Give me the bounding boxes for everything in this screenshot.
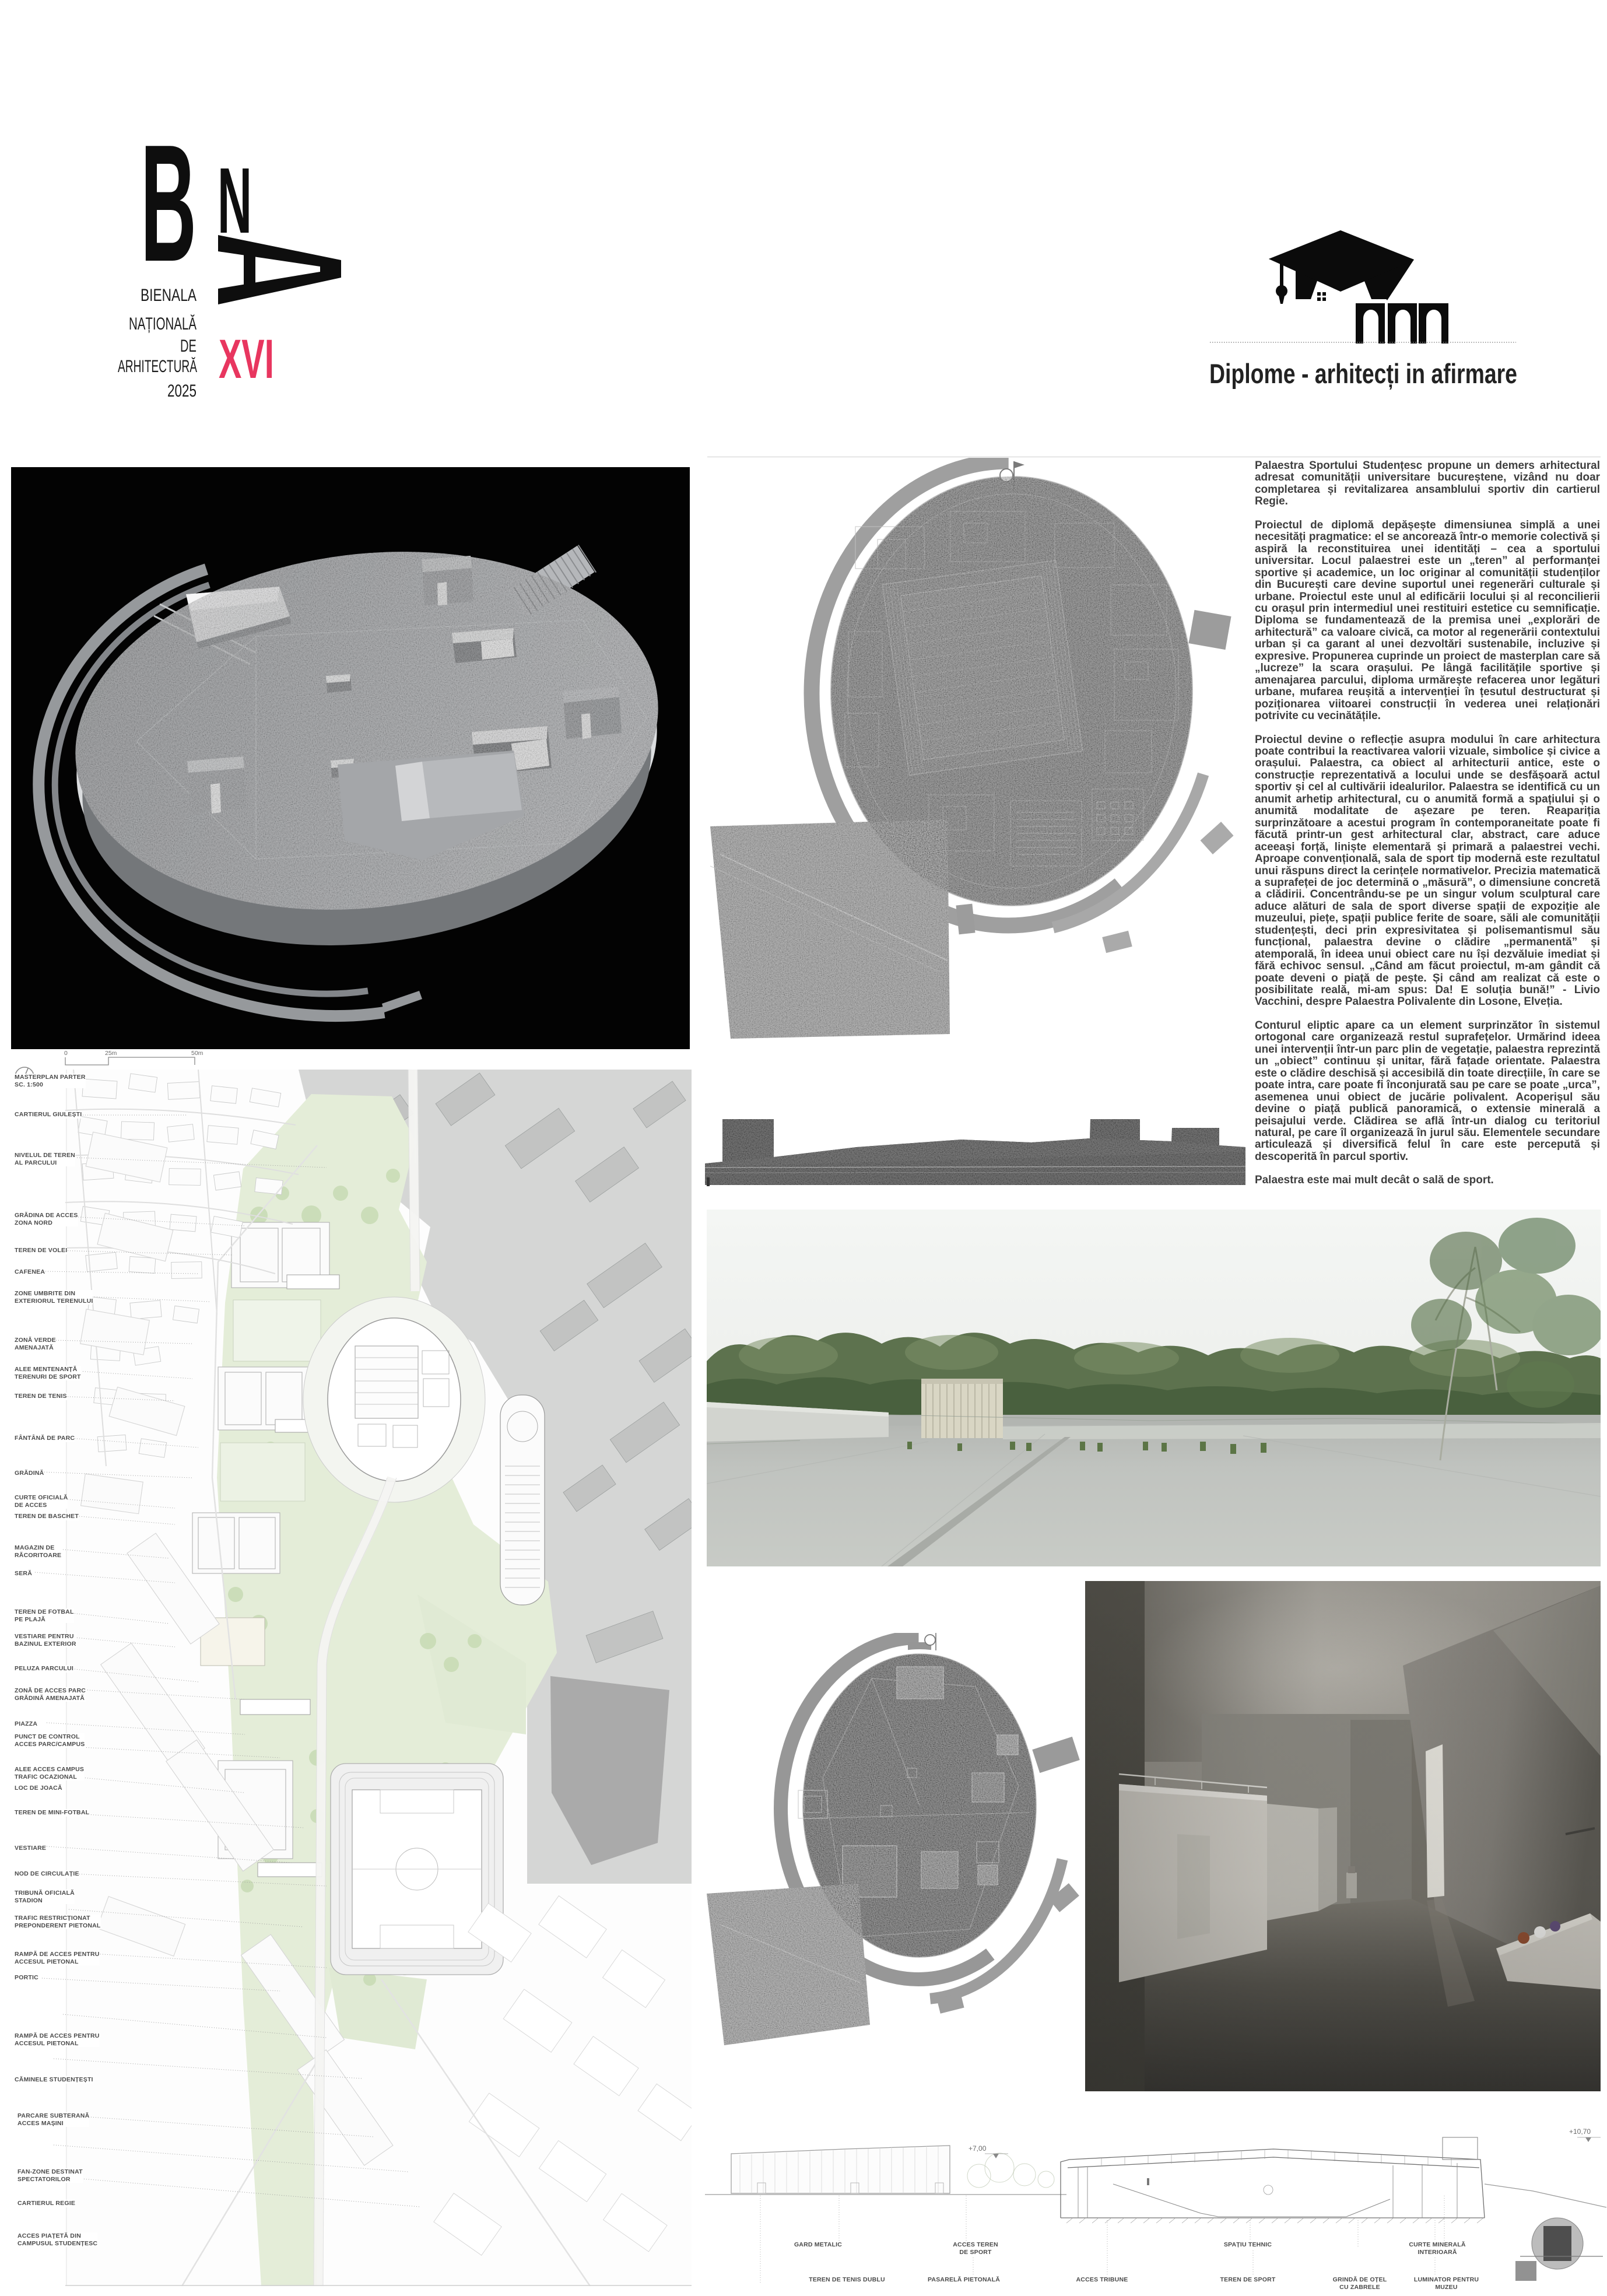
svg-text:0: 0 — [64, 1050, 68, 1057]
svg-text:50m: 50m — [191, 1050, 203, 1057]
svg-text:+10,70: +10,70 — [1569, 2127, 1591, 2136]
svg-text:NAȚIONALĂ: NAȚIONALĂ — [129, 314, 197, 334]
svg-text:ARHITECTURĂ: ARHITECTURĂ — [118, 357, 197, 376]
svg-text:25m: 25m — [105, 1050, 117, 1057]
svg-text:BIENALA: BIENALA — [141, 286, 197, 305]
svg-text:2025: 2025 — [167, 381, 197, 401]
svg-text:DE: DE — [180, 336, 197, 356]
svg-text:+7,00: +7,00 — [969, 2144, 987, 2153]
svg-text:XVI: XVI — [219, 328, 274, 390]
svg-text:Diplome - arhitecți in afirmar: Diplome - arhitecți in afirmare — [1209, 358, 1517, 390]
svg-text:B: B — [141, 117, 197, 296]
